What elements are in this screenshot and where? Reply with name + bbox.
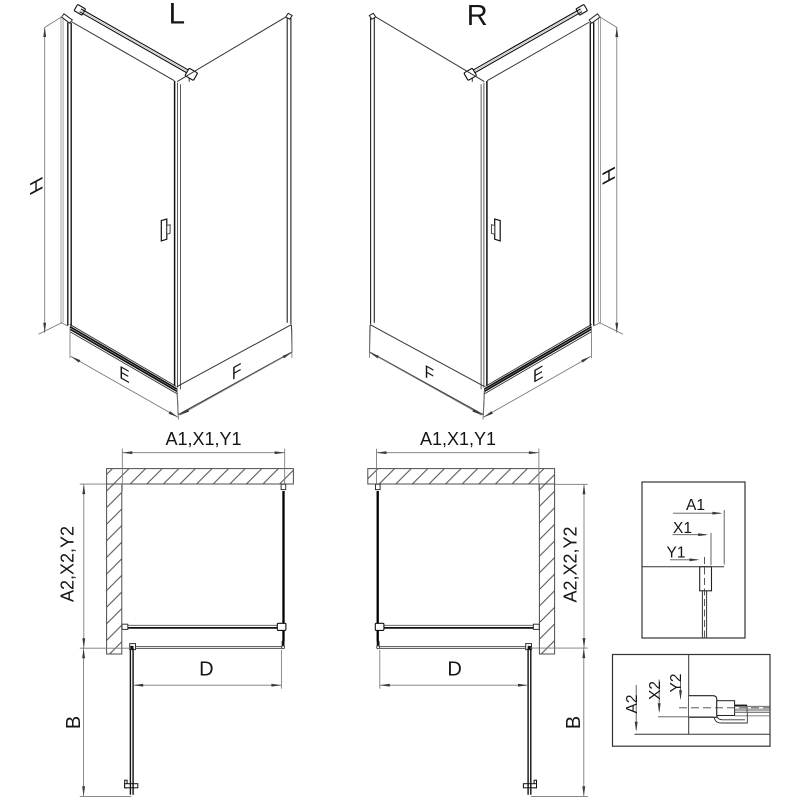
svg-text:A2: A2 — [624, 695, 641, 714]
svg-text:B: B — [563, 716, 585, 729]
svg-text:F: F — [425, 361, 435, 386]
svg-text:X2: X2 — [647, 681, 664, 700]
svg-text:Y2: Y2 — [668, 674, 685, 693]
svg-text:R: R — [467, 0, 488, 32]
svg-text:A1: A1 — [686, 497, 705, 514]
svg-text:L: L — [169, 0, 185, 31]
svg-text:D: D — [447, 658, 461, 680]
svg-text:Y1: Y1 — [667, 545, 686, 562]
svg-text:A1,X1,Y1: A1,X1,Y1 — [165, 429, 241, 449]
svg-text:A2,X2,Y2: A2,X2,Y2 — [560, 526, 580, 602]
svg-text:H: H — [27, 173, 47, 199]
svg-text:H: H — [598, 163, 618, 189]
svg-text:A1,X1,Y1: A1,X1,Y1 — [420, 429, 496, 449]
svg-text:X1: X1 — [673, 520, 692, 537]
svg-text:A2,X2,Y2: A2,X2,Y2 — [57, 526, 77, 602]
svg-text:D: D — [199, 658, 213, 680]
svg-text:B: B — [63, 716, 85, 729]
